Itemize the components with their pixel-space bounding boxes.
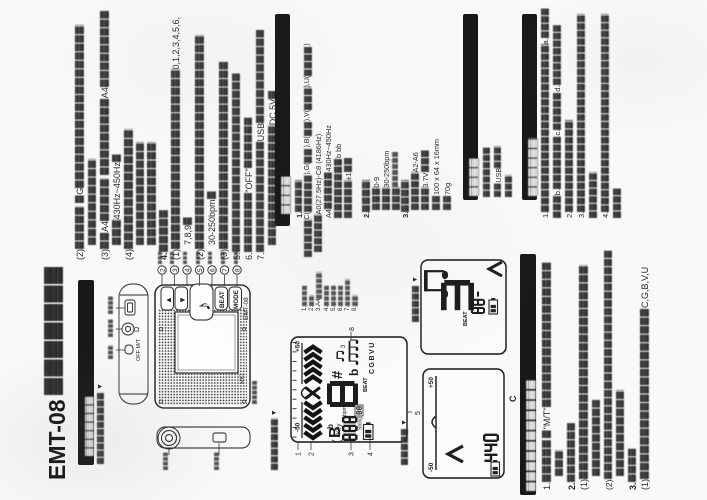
- svg-text:BEAT: BEAT: [463, 311, 469, 326]
- svg-text:String: String: [358, 417, 364, 430]
- svg-text:4: 4: [184, 268, 191, 272]
- svg-text:3: 3: [349, 452, 356, 456]
- svg-text:(: (: [331, 439, 343, 443]
- svg-text:▼: ▼: [178, 296, 187, 304]
- svg-text:6: 6: [209, 268, 216, 272]
- svg-text:BEAT: BEAT: [363, 377, 369, 392]
- svg-text:5: 5: [197, 268, 204, 272]
- svg-text:8: 8: [234, 268, 241, 272]
- svg-text:CGBVU: CGBVU: [369, 341, 376, 374]
- svg-text:2: 2: [159, 268, 166, 272]
- svg-text:3: 3: [341, 344, 347, 348]
- svg-text:2: 2: [309, 452, 316, 456]
- svg-text:8: 8: [349, 327, 356, 331]
- svg-text:bpm: bpm: [342, 406, 348, 416]
- svg-text:#: #: [329, 370, 346, 379]
- svg-text:BEAT: BEAT: [219, 291, 226, 308]
- svg-text:MODE: MODE: [233, 290, 240, 309]
- svg-text:♪: ♪: [194, 302, 215, 312]
- svg-text:MIC: MIC: [240, 374, 246, 384]
- svg-text:EMT-08: EMT-08: [243, 297, 250, 320]
- svg-text:▲: ▲: [164, 296, 173, 304]
- svg-text:7: 7: [222, 268, 229, 272]
- svg-text:1: 1: [296, 452, 303, 456]
- svg-text:4: 4: [368, 452, 375, 456]
- svg-text:3: 3: [172, 268, 179, 272]
- svg-text:b: b: [326, 424, 335, 429]
- svg-text:b: b: [347, 369, 361, 376]
- svg-text:Key: Key: [337, 424, 343, 434]
